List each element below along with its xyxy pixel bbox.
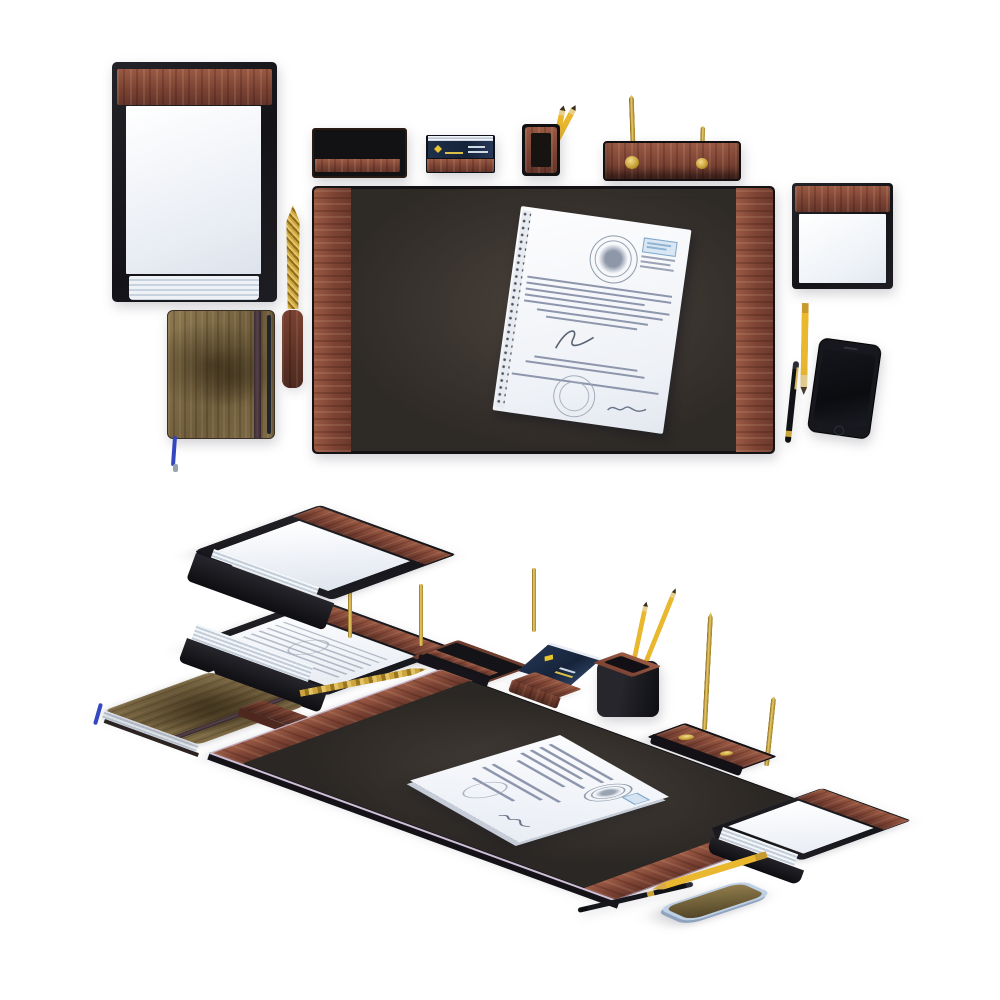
memo-pad-paper xyxy=(799,214,886,283)
letter-opener-blade xyxy=(282,205,304,309)
pen-socket-1 xyxy=(625,156,639,169)
card-face xyxy=(428,141,493,158)
business-card-box xyxy=(426,135,495,173)
letter-tray-paper xyxy=(126,106,261,274)
card-logo xyxy=(434,145,442,153)
tray-post-3 xyxy=(532,568,536,632)
letter-opener-handle xyxy=(282,310,303,388)
pencil-cup xyxy=(515,92,585,182)
document-blue-stamp xyxy=(642,237,678,257)
black-pen-clip xyxy=(794,367,798,389)
letter-tray-wood-bar xyxy=(117,69,272,105)
letter-tray xyxy=(112,62,277,302)
memo-pad-wood-bar xyxy=(795,186,890,212)
iso-stand-pen-1 xyxy=(702,612,713,730)
document-hand-signature xyxy=(605,398,651,422)
pen-tray-lip xyxy=(315,159,400,172)
notebook-ribbon-tip xyxy=(173,464,178,472)
document xyxy=(493,206,692,434)
desk-set-render xyxy=(0,0,1000,1000)
tray-post-2 xyxy=(419,584,423,646)
top-view xyxy=(0,0,1000,490)
smartphone xyxy=(807,337,883,440)
iso-pen-socket-2 xyxy=(717,750,736,757)
notebook xyxy=(167,310,275,439)
notebook-elastic-band xyxy=(254,311,261,438)
pencil xyxy=(800,303,809,395)
letter-opener xyxy=(280,205,306,389)
document-signature xyxy=(549,324,603,361)
pen-tray xyxy=(312,128,407,178)
smartphone-screen xyxy=(813,349,876,428)
notebook-ribbon xyxy=(171,436,177,466)
letter-tray-paper-stack-edge xyxy=(129,276,259,300)
card-box-base xyxy=(427,159,494,172)
iso-cup-pencil-2 xyxy=(641,587,678,669)
black-pen xyxy=(785,361,800,443)
smartphone-home-button xyxy=(833,425,844,436)
desk-pad-right-rail xyxy=(736,188,773,452)
iso-pen-socket-1 xyxy=(675,733,697,741)
double-pen-stand xyxy=(596,90,746,182)
iso-notebook-ribbon xyxy=(93,703,103,725)
pencil-cup-body xyxy=(522,124,560,176)
smartphone-speaker xyxy=(844,346,858,350)
pen-stand-bar xyxy=(603,141,741,181)
notebook-page-edge xyxy=(267,315,271,434)
iso-view xyxy=(0,490,1000,1000)
memo-pad xyxy=(792,183,893,289)
pen-socket-2 xyxy=(696,158,708,169)
iso-card-logo xyxy=(540,653,557,663)
document-eagle-stamp xyxy=(587,232,641,286)
desk-pad-left-rail xyxy=(314,188,351,452)
